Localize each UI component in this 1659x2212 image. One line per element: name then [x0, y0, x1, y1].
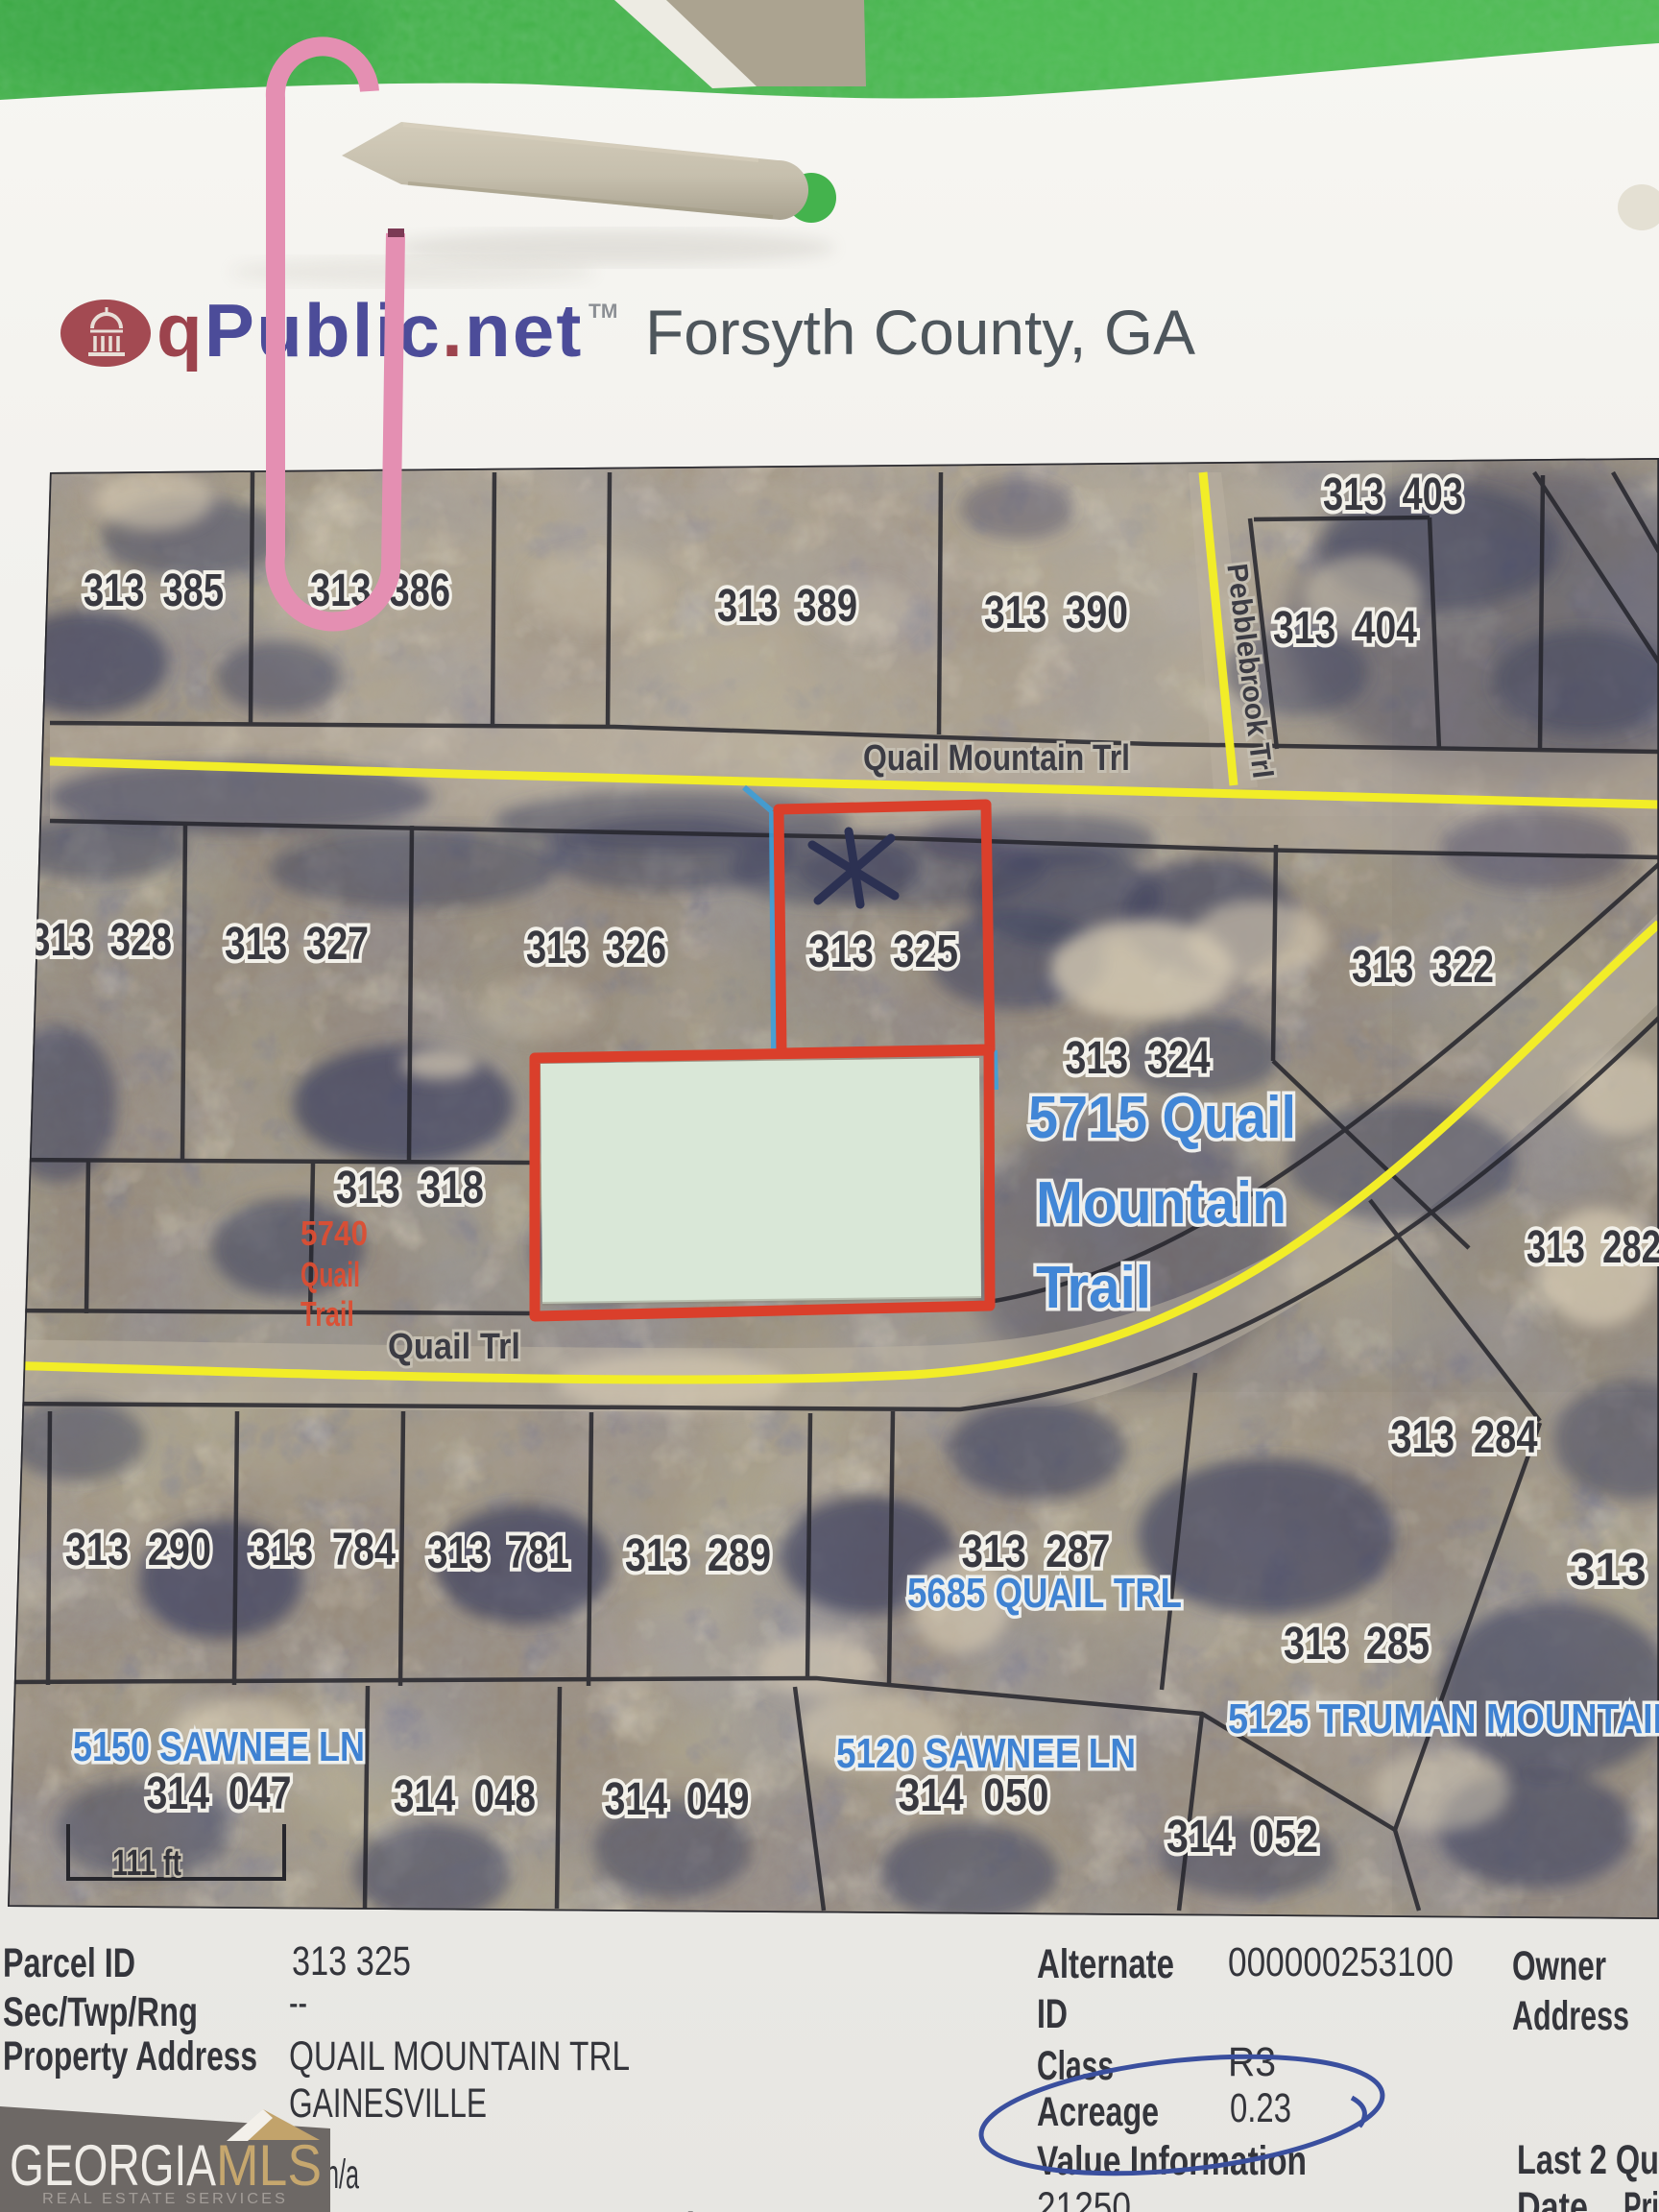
svg-text:Quail Trl: Quail Trl	[388, 1327, 520, 1367]
svg-text:313 289: 313 289	[625, 1530, 771, 1581]
svg-text:313 327: 313 327	[225, 919, 369, 970]
svg-text:MLS: MLS	[216, 2133, 322, 2198]
svg-text:Address: Address	[1512, 1993, 1629, 2039]
svg-text:000000253100: 000000253100	[1228, 1939, 1454, 1985]
svg-text:314 049: 314 049	[605, 1774, 750, 1825]
svg-text:qPublic.net: qPublic.net	[156, 288, 584, 373]
svg-text:GAINESVILLE: GAINESVILLE	[289, 2080, 487, 2127]
svg-text:5125 TRUMAN MOUNTAIN: 5125 TRUMAN MOUNTAIN	[1228, 1695, 1659, 1743]
svg-text:314 050: 314 050	[899, 1770, 1049, 1821]
svg-text:313 404: 313 404	[1273, 603, 1417, 654]
svg-text:21250: 21250	[1037, 2184, 1131, 2212]
svg-text:314 048: 314 048	[394, 1771, 536, 1822]
svg-text:313 784: 313 784	[250, 1525, 396, 1575]
svg-text:--: --	[289, 1980, 307, 2026]
svg-text:QUAIL MOUNTAIN TRL: QUAIL MOUNTAIN TRL	[289, 2033, 630, 2080]
svg-text:313 326: 313 326	[526, 923, 666, 974]
svg-text:111 ft: 111 ft	[112, 1843, 181, 1884]
svg-text:313 285: 313 285	[1284, 1619, 1430, 1670]
svg-text:Alternate: Alternate	[1037, 1941, 1174, 1987]
svg-text:313 390: 313 390	[984, 588, 1128, 638]
svg-text:313 282: 313 282	[1527, 1222, 1659, 1273]
svg-text:Property Address: Property Address	[3, 2033, 257, 2080]
svg-text:313 318: 313 318	[336, 1163, 484, 1214]
svg-text:Last 2 Qu: Last 2 Qu	[1517, 2137, 1659, 2183]
svg-text:313 403: 313 403	[1323, 469, 1463, 520]
svg-text:314 047: 314 047	[147, 1768, 292, 1819]
svg-text:313 325: 313 325	[292, 1938, 411, 1984]
svg-text:GEORGIA: GEORGIA	[10, 2133, 216, 2198]
svg-text:REAL ESTATE SERVICES: REAL ESTATE SERVICES	[42, 2191, 288, 2207]
svg-text:313 781: 313 781	[427, 1527, 569, 1578]
svg-text:313 325: 313 325	[808, 926, 958, 977]
svg-text:Date: Date	[1517, 2184, 1588, 2212]
svg-text:Owner: Owner	[1512, 1943, 1606, 1989]
svg-text:TM: TM	[589, 301, 617, 323]
svg-text:313 284: 313 284	[1391, 1412, 1538, 1463]
svg-text:Quail Mountain Trl: Quail Mountain Trl	[863, 738, 1130, 779]
svg-text:Trail: Trail	[1036, 1255, 1151, 1321]
svg-text:313 2: 313 2	[1570, 1545, 1659, 1596]
svg-text:313 324: 313 324	[1066, 1033, 1211, 1084]
svg-text:Mountain: Mountain	[1036, 1170, 1286, 1237]
svg-text:5685 QUAIL TRL: 5685 QUAIL TRL	[907, 1570, 1182, 1617]
svg-text:Parcel ID: Parcel ID	[3, 1940, 135, 1986]
svg-text:313 328: 313 328	[30, 915, 172, 966]
svg-text:n/a: n/a	[325, 2152, 359, 2198]
svg-text:313 385: 313 385	[84, 565, 224, 616]
svg-text:Forsyth County, GA: Forsyth County, GA	[645, 297, 1195, 368]
svg-text:Class: Class	[1037, 2043, 1114, 2089]
svg-text:ID: ID	[1037, 1991, 1068, 2037]
svg-text:0.23: 0.23	[1230, 2085, 1291, 2131]
svg-text:Sec/Twp/Rng: Sec/Twp/Rng	[3, 1989, 198, 2035]
svg-text:R3: R3	[1228, 2039, 1276, 2085]
svg-text:1.1.1021AT 325-33 / PEBBLEBROO: 1.1.1021AT 325-33 / PEBBLEBROOK	[326, 2204, 1019, 2212]
svg-text:314 052: 314 052	[1166, 1812, 1318, 1863]
svg-text:313 322: 313 322	[1352, 942, 1494, 993]
svg-text:5740: 5740	[301, 1214, 368, 1253]
svg-text:313 389: 313 389	[717, 581, 857, 632]
svg-text:5150 SAWNEE LN: 5150 SAWNEE LN	[73, 1723, 365, 1770]
svg-text:313 290: 313 290	[65, 1525, 211, 1575]
svg-text:Trail: Trail	[301, 1294, 354, 1334]
svg-text:5120 SAWNEE LN: 5120 SAWNEE LN	[836, 1730, 1136, 1777]
svg-text:Pri: Pri	[1623, 2184, 1659, 2212]
svg-text:Quail: Quail	[301, 1255, 360, 1294]
svg-text:5715 Quail: 5715 Quail	[1028, 1085, 1296, 1151]
svg-text:Value Information: Value Information	[1037, 2138, 1307, 2184]
svg-text:Acreage: Acreage	[1037, 2089, 1159, 2135]
